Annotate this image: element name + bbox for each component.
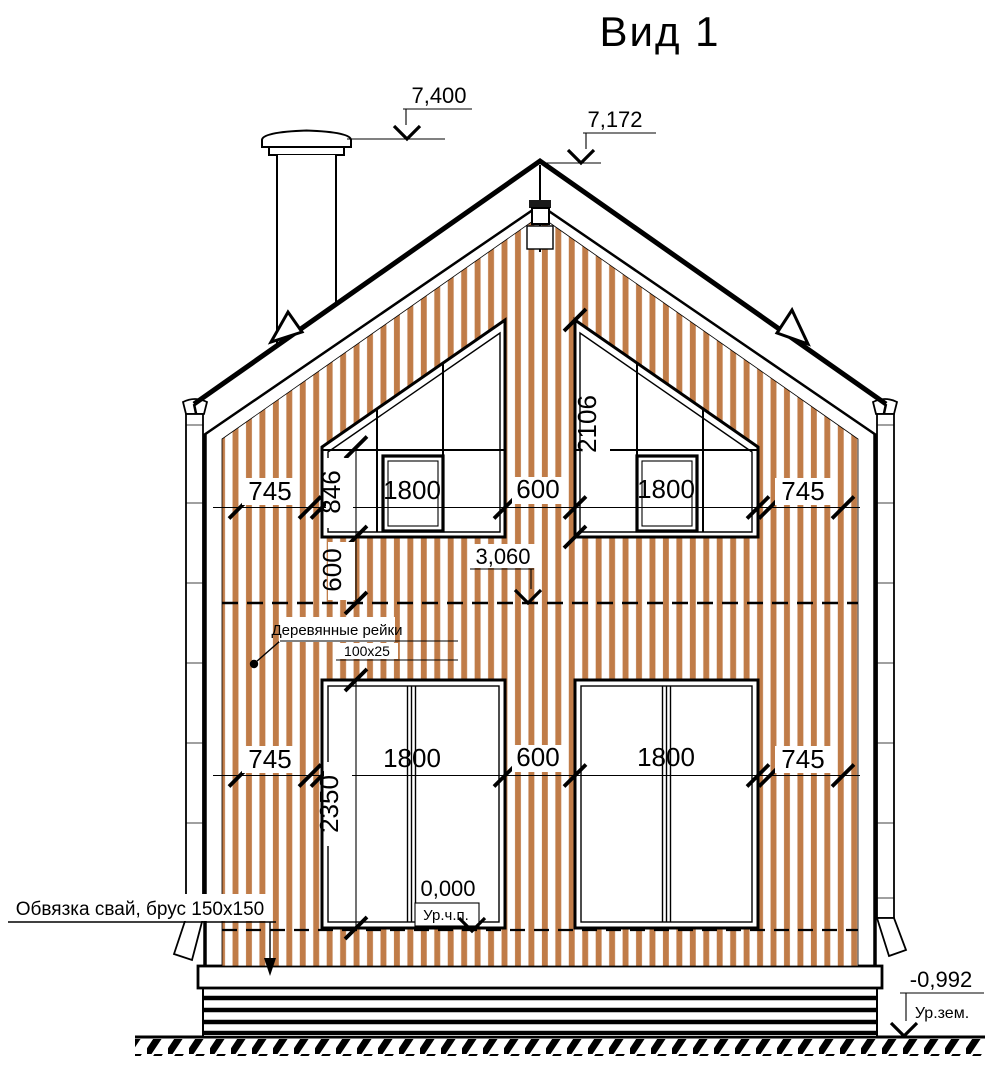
- dim-lower-3: 600: [516, 742, 559, 772]
- elevation-svg: 745 1800 600 1800 745 745 1800 600 1800 …: [0, 0, 1004, 1080]
- ground-line: [135, 1037, 985, 1056]
- level-floor1: 0,000 Ур.ч.п.: [415, 876, 485, 931]
- level-ridge-value: 7,172: [587, 107, 642, 132]
- note-battens-line2: 100х25: [344, 643, 390, 659]
- note-battens-line1: Деревянные рейки: [272, 622, 403, 639]
- dim-lower-2: 1800: [383, 743, 441, 773]
- downspout-right: [873, 399, 906, 956]
- dim-upper-4: 1800: [637, 474, 695, 504]
- dim-lower-4: 1800: [637, 742, 695, 772]
- dim-lower-1: 745: [248, 744, 291, 774]
- level-ground-label: Ур.зем.: [915, 1005, 969, 1022]
- window-lower-right: [575, 680, 758, 928]
- dim-upper-2: 1800: [383, 475, 441, 505]
- pile-strapping-beam: [198, 966, 882, 988]
- dim-upper-1: 745: [248, 476, 291, 506]
- level-chimney-top-value: 7,400: [411, 83, 466, 108]
- dim-upper-3: 600: [516, 474, 559, 504]
- foundation-plinth: [198, 966, 882, 1037]
- dim-window-height-2106: 2106: [572, 395, 602, 453]
- level-floor1-value: 0,000: [420, 876, 475, 901]
- drawing-title: Вид 1: [599, 8, 720, 55]
- note-piles-text: Обвязка свай, брус 150х150: [16, 899, 264, 920]
- dim-window-height-2350: 2350: [314, 775, 344, 833]
- downspout-left: [174, 399, 207, 960]
- dim-under-window-600: 600: [317, 548, 347, 591]
- dim-upper-5: 745: [781, 476, 824, 506]
- level-floor2-value: 3,060: [475, 544, 530, 569]
- dim-lower-5: 745: [781, 744, 824, 774]
- elevation-drawing: 745 1800 600 1800 745 745 1800 600 1800 …: [0, 0, 1004, 1080]
- dim-window-side-846: 846: [316, 470, 346, 513]
- level-ground-value: -0,992: [910, 967, 972, 992]
- level-ground: -0,992 Ур.зем.: [891, 965, 987, 1036]
- level-ridge: 7,172: [540, 107, 656, 163]
- level-chimney-top: 7,400: [347, 83, 475, 139]
